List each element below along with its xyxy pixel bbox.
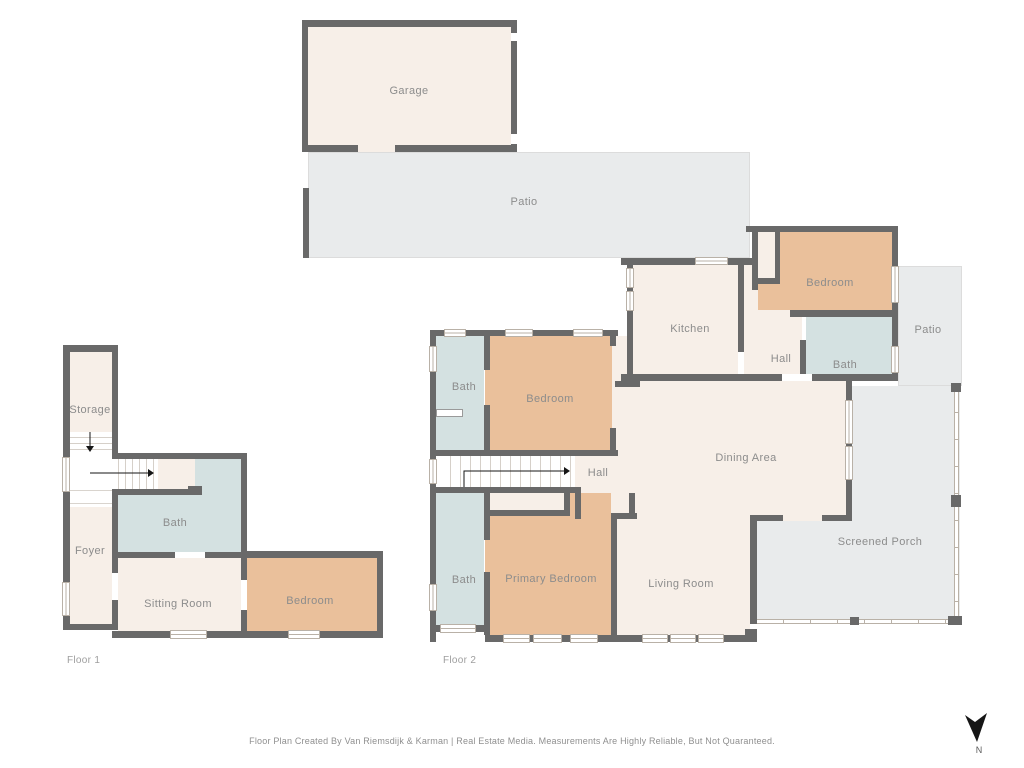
room-label-living-room: Living Room: [648, 578, 714, 590]
closet-bedroom-tr: [758, 232, 775, 280]
wall: [485, 510, 570, 516]
wall: [621, 374, 782, 381]
room-label-bedroom-top-right: Bedroom: [806, 277, 853, 289]
window: [845, 446, 853, 480]
porch-post: [951, 495, 961, 507]
room-label-sitting-room: Sitting Room: [144, 598, 212, 610]
room-label-hall-right: Hall: [771, 353, 792, 365]
north-label: N: [976, 745, 983, 755]
wall: [241, 551, 383, 558]
wall: [812, 374, 898, 381]
room-bath-bottom-left: [436, 493, 484, 632]
wall: [615, 381, 640, 387]
room-storage: [70, 352, 112, 432]
room-label-bath-right: Bath: [833, 359, 857, 371]
room-label-foyer: Foyer: [75, 545, 105, 557]
wall: [302, 145, 358, 152]
wall: [430, 450, 618, 456]
window: [891, 346, 899, 373]
wall: [377, 551, 383, 638]
window: [62, 582, 70, 616]
window: [573, 329, 603, 337]
room-label-bedroom-floor1: Bedroom: [286, 595, 333, 607]
room-label-bath-floor1: Bath: [163, 517, 187, 529]
window: [503, 634, 530, 643]
window: [570, 634, 598, 643]
wall: [745, 629, 757, 642]
wall: [112, 345, 118, 453]
wall: [112, 489, 118, 573]
wall: [564, 493, 570, 510]
room-screened-porch-right: [852, 386, 960, 624]
room-label-screened-porch: Screened Porch: [838, 536, 922, 548]
stair-landing: [70, 455, 112, 507]
window: [626, 268, 634, 288]
wall: [112, 489, 190, 495]
room-foyer: [70, 507, 112, 624]
room-label-dining-area: Dining Area: [715, 452, 776, 464]
porch-post: [948, 616, 962, 625]
wall: [188, 486, 202, 495]
window: [505, 329, 533, 337]
wall: [112, 453, 247, 459]
wall: [775, 232, 780, 280]
wall: [302, 20, 517, 27]
floor1-caption: Floor 1: [67, 655, 100, 666]
wall: [790, 310, 898, 317]
stair-line: [70, 503, 112, 504]
room-label-bath-bottom-left: Bath: [452, 574, 476, 586]
room-label-garage: Garage: [389, 85, 428, 97]
wall: [302, 20, 308, 152]
wall: [395, 145, 517, 152]
wall: [303, 188, 309, 258]
window: [429, 459, 437, 484]
wall: [610, 330, 616, 346]
wall: [750, 517, 757, 624]
room-bath-top-left: [436, 336, 484, 450]
wall: [430, 487, 581, 493]
porch-post: [951, 383, 961, 392]
wall: [241, 453, 247, 558]
stair-line: [70, 490, 112, 491]
window: [891, 266, 899, 303]
wall: [758, 278, 780, 284]
wall: [112, 631, 383, 638]
wall: [800, 340, 806, 374]
stair-nook: [158, 459, 195, 489]
room-label-patio-top: Patio: [510, 196, 537, 208]
room-label-bath-top-left: Bath: [452, 381, 476, 393]
window: [845, 400, 853, 444]
room-label-patio-right: Patio: [914, 324, 941, 336]
window: [288, 630, 320, 639]
window: [440, 624, 476, 633]
footer-credit: Floor Plan Created By Van Riemsdijk & Ka…: [0, 736, 1024, 746]
room-label-primary-bedroom: Primary Bedroom: [505, 573, 597, 585]
room-label-bedroom-left: Bedroom: [526, 393, 573, 405]
wall: [746, 226, 898, 232]
wall: [738, 264, 744, 352]
wall: [484, 493, 490, 540]
staircase-floor1-down: [70, 432, 112, 455]
window: [429, 346, 437, 372]
window: [626, 291, 634, 311]
window: [670, 634, 696, 643]
room-sitting-room: [118, 558, 241, 632]
wall: [241, 558, 247, 580]
wall: [63, 624, 118, 630]
wall: [611, 516, 617, 635]
wall: [63, 345, 118, 352]
staircase-floor1-up: [112, 459, 158, 489]
closet-primary: [485, 493, 564, 510]
wall: [484, 336, 490, 370]
window: [533, 634, 562, 643]
wall: [575, 493, 581, 519]
window: [698, 634, 724, 643]
porch-post: [850, 617, 859, 625]
staircase-floor2: [441, 456, 575, 487]
wall: [822, 515, 852, 521]
wall: [112, 552, 175, 558]
room-label-storage: Storage: [69, 404, 110, 416]
floor2-caption: Floor 2: [443, 655, 476, 666]
window: [642, 634, 668, 643]
wall-notch: [511, 134, 517, 144]
wall: [484, 405, 490, 450]
floor-plan-canvas: Garage Patio: [0, 0, 1024, 768]
window: [62, 457, 70, 492]
window: [170, 630, 207, 639]
wall-notch: [511, 33, 517, 41]
room-label-hall-center: Hall: [588, 467, 609, 479]
window: [429, 584, 437, 611]
window: [444, 329, 466, 337]
room-label-kitchen: Kitchen: [670, 323, 710, 335]
bath-counter: [436, 409, 463, 417]
window: [695, 257, 728, 265]
